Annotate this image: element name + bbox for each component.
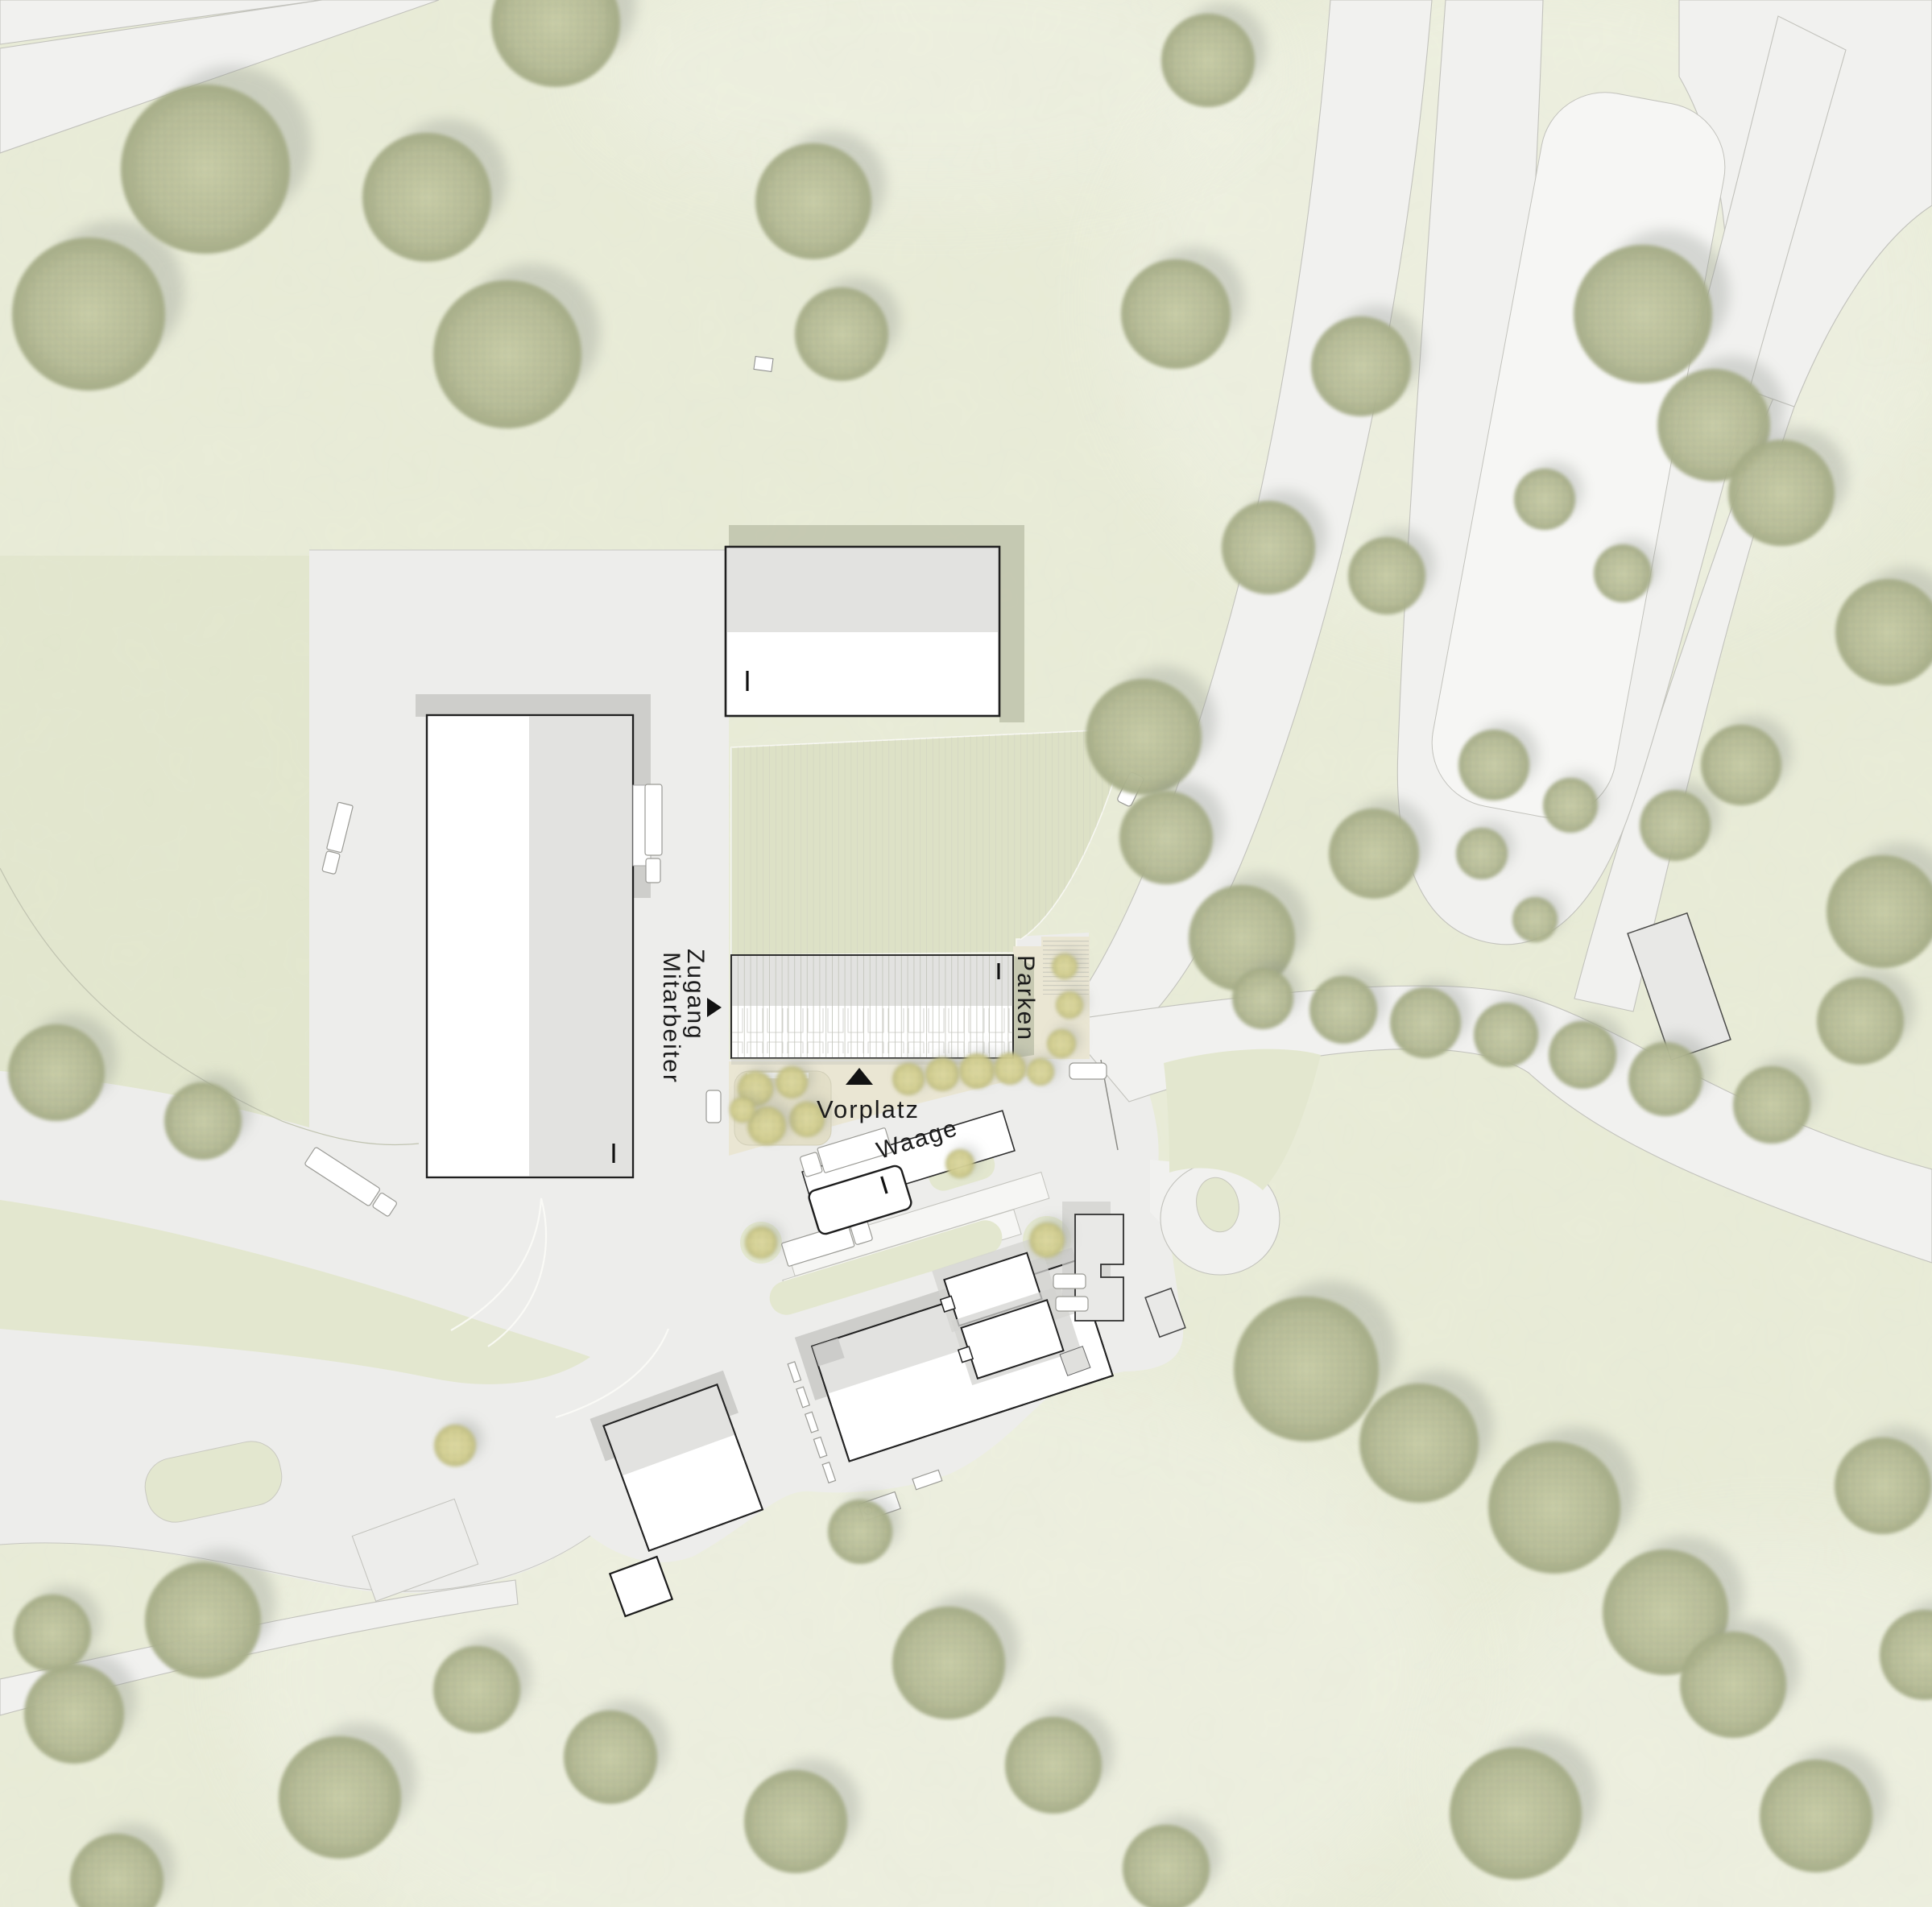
small-hut-north [754, 357, 773, 372]
building-west-hall [427, 715, 651, 1177]
car-vorplatz [706, 1090, 721, 1123]
car-parked-a [1053, 1274, 1086, 1289]
label-parken: Parken [1012, 955, 1039, 1041]
car-parked-b [1056, 1297, 1088, 1311]
label-mitarbeiter: Mitarbeiter [658, 952, 685, 1084]
site-plan: Zugang Mitarbeiter Vorplatz Waage Parken [0, 0, 1932, 1907]
building-storage-hall [731, 955, 1034, 1065]
building-north [726, 547, 999, 716]
site-plan-canvas: Zugang Mitarbeiter Vorplatz Waage Parken [0, 0, 1932, 1907]
label-zugang: Zugang [682, 949, 709, 1040]
truck-at-west-hall [645, 784, 662, 883]
label-vorplatz: Vorplatz [817, 1095, 920, 1123]
car-at-gate [1069, 1063, 1107, 1079]
